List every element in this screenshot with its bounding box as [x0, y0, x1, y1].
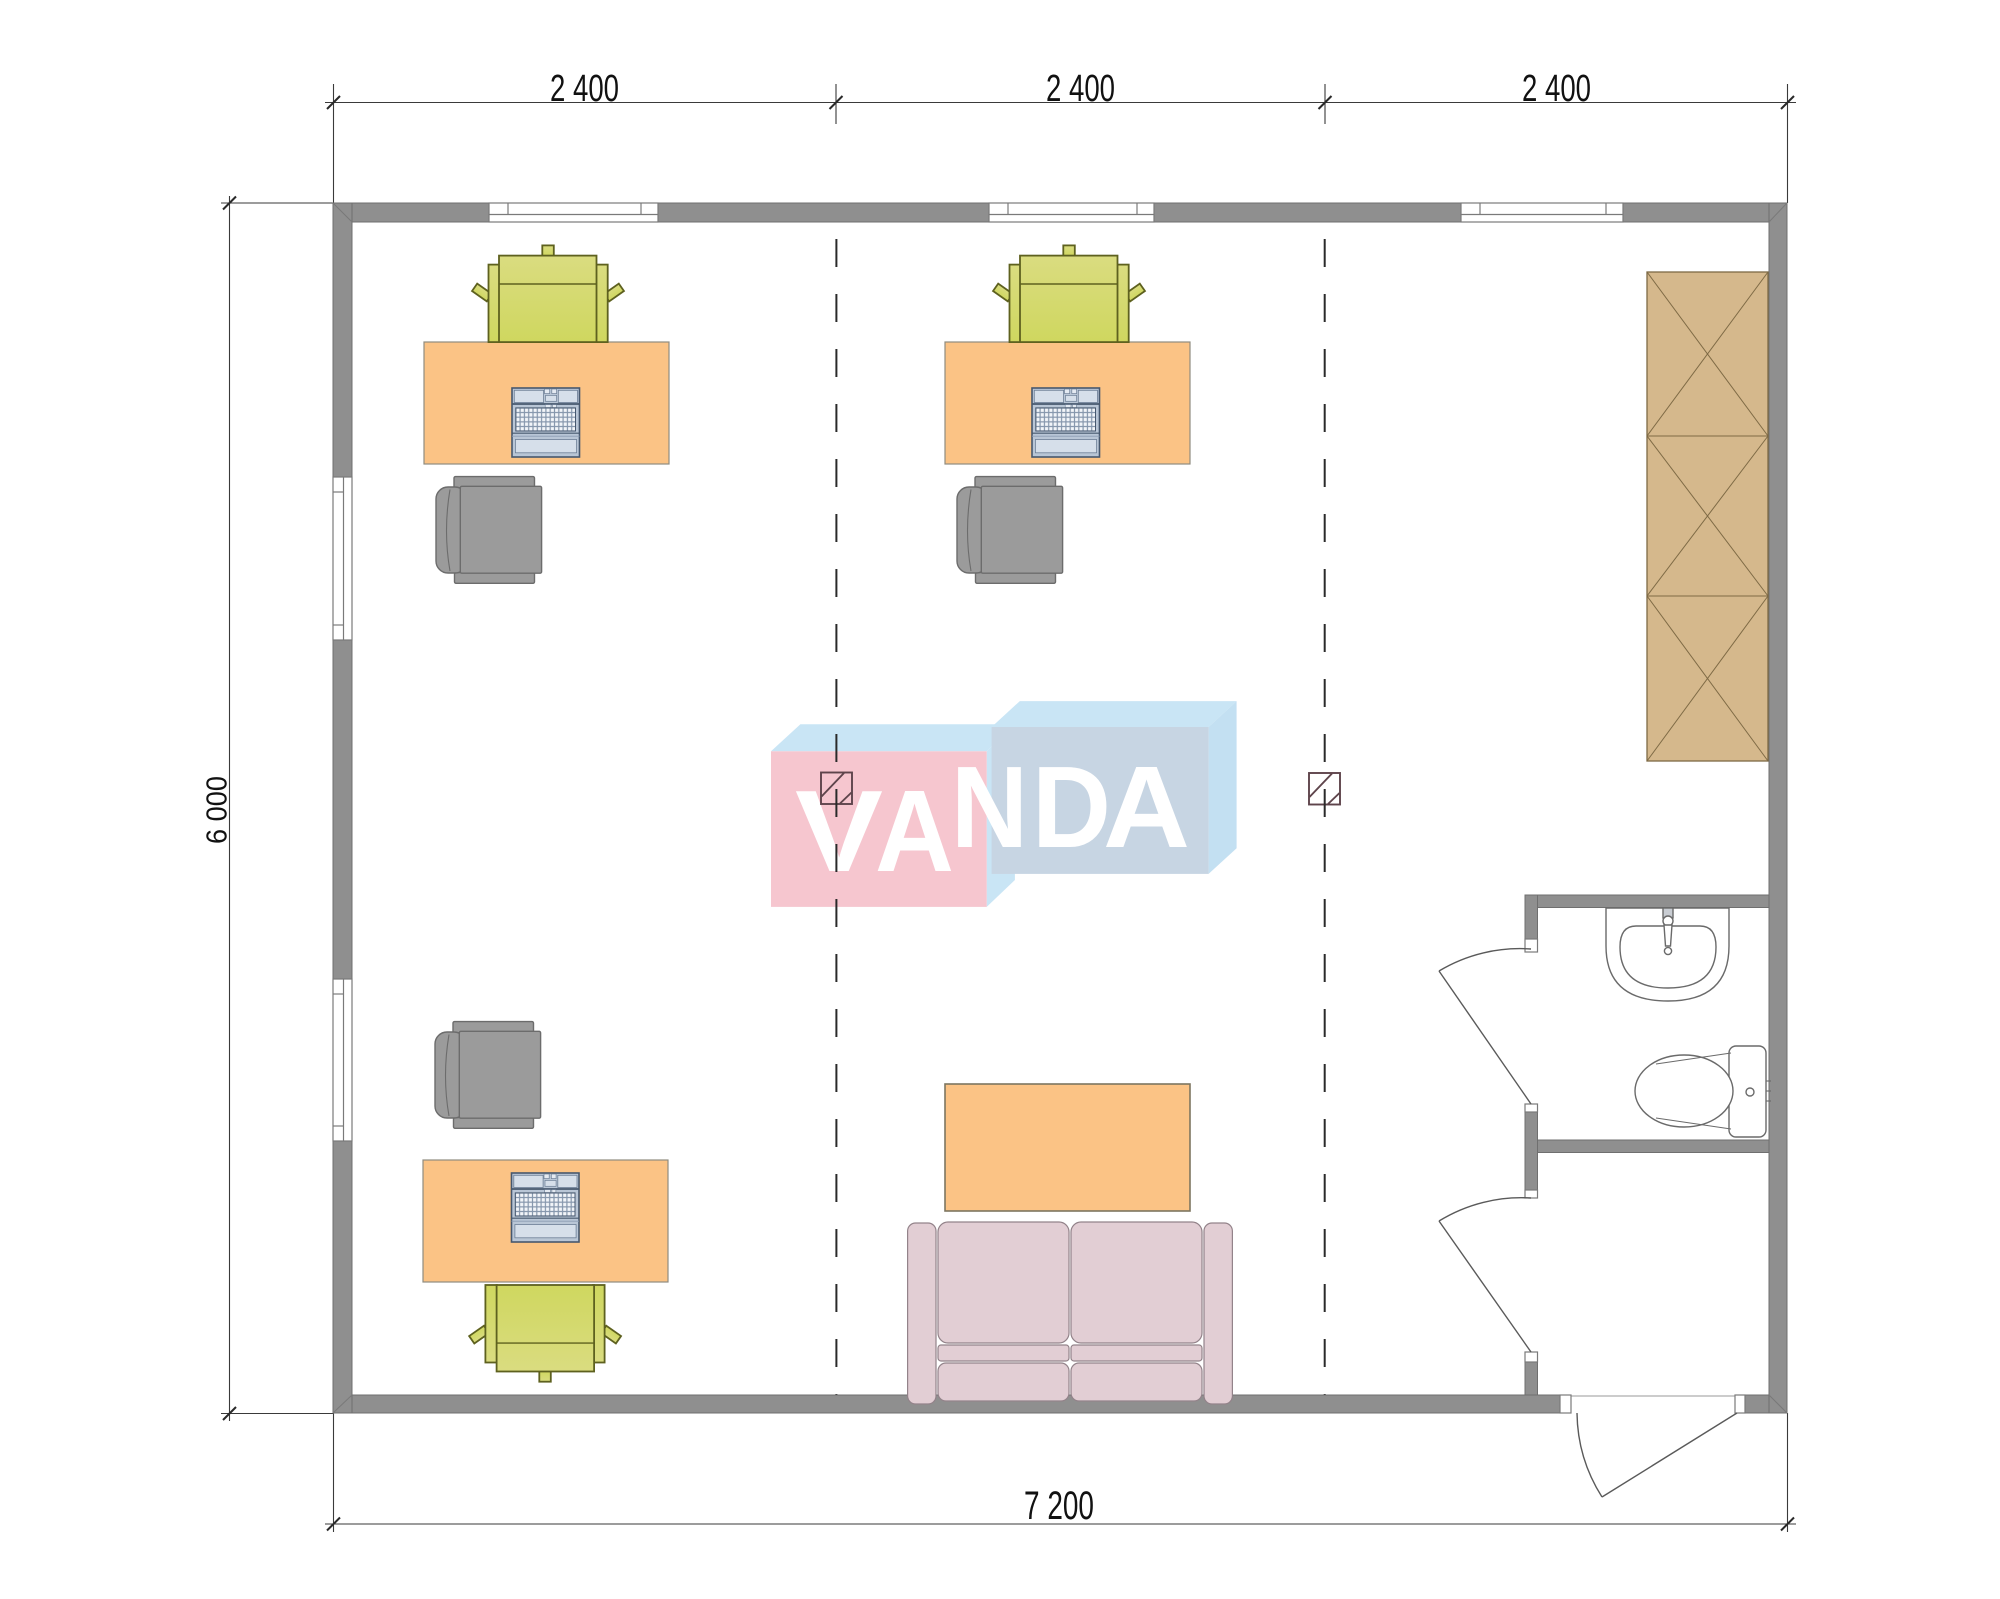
svg-text:6 000: 6 000	[202, 776, 234, 844]
svg-text:N: N	[951, 742, 1028, 872]
svg-text:A: A	[875, 766, 954, 896]
svg-text:2 400: 2 400	[1046, 68, 1115, 110]
svg-text:V: V	[795, 766, 883, 896]
svg-text:D: D	[1032, 742, 1111, 872]
svg-text:2 400: 2 400	[1522, 68, 1591, 110]
svg-text:7 200: 7 200	[1024, 1484, 1094, 1528]
svg-text:2 400: 2 400	[550, 68, 619, 110]
svg-text:A: A	[1103, 742, 1190, 872]
